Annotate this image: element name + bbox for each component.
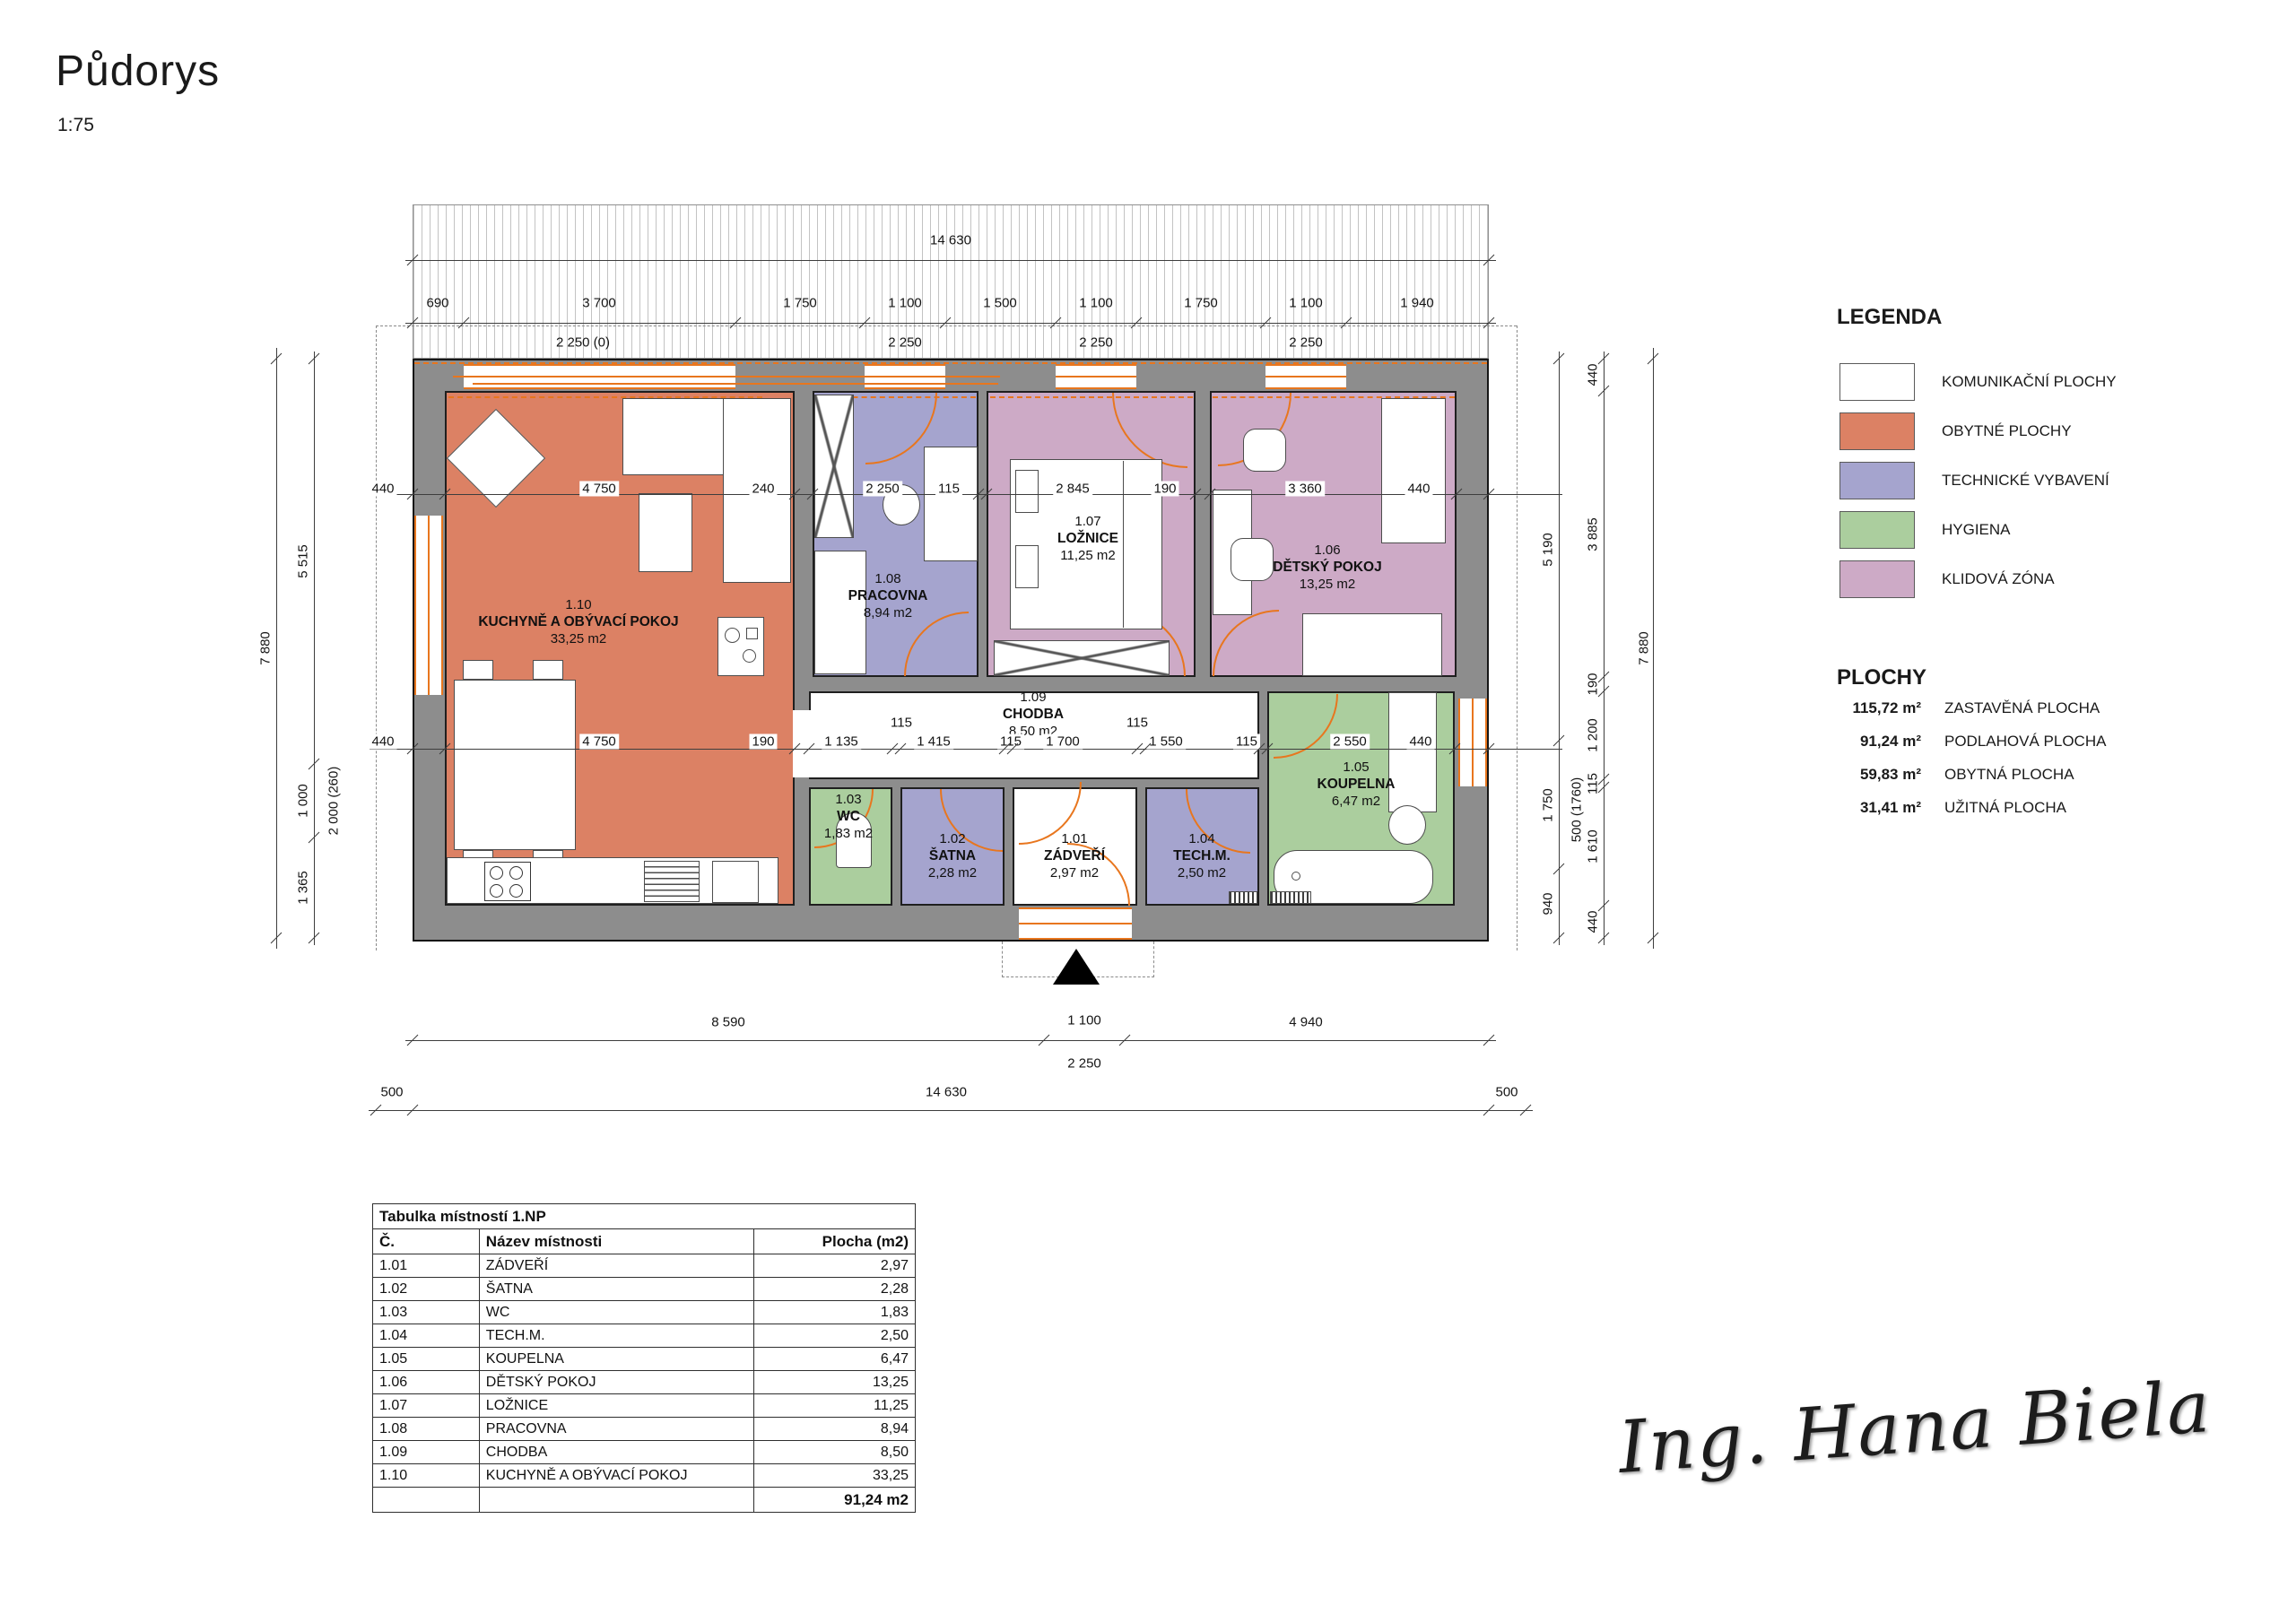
table-total-row: 91,24 m2 xyxy=(373,1488,916,1513)
dim-label: 2 250 xyxy=(1289,335,1323,351)
room-number: 1.02 xyxy=(928,830,977,847)
dining-table xyxy=(454,680,576,850)
legend-label: KOMUNIKAČNÍ PLOCHY xyxy=(1942,363,2117,401)
window-bathroom-east xyxy=(1458,699,1487,786)
room-label: 1.07LOŽNICE11,25 m2 xyxy=(1057,513,1118,564)
drawing-sheet: Půdorys 1:75 xyxy=(0,0,2296,1623)
room-label: 1.08PRACOVNA8,94 m2 xyxy=(848,570,928,621)
room-number: 1.08 xyxy=(848,570,928,587)
cell-number: 1.04 xyxy=(373,1324,480,1348)
area-value: 91,24 m² xyxy=(1831,733,1921,751)
table-row: 1.02ŠATNA2,28 xyxy=(373,1278,916,1301)
dim-label: 8 590 xyxy=(711,1015,745,1030)
dim-label: 2 250 xyxy=(1067,1056,1101,1072)
dim-label: 1 750 xyxy=(1184,296,1218,311)
burner xyxy=(490,884,503,898)
tech-grate xyxy=(1229,891,1257,904)
room-name: ZÁDVEŘÍ xyxy=(1044,847,1105,864)
legend-label: KLIDOVÁ ZÓNA xyxy=(1942,560,2055,598)
table-row: 1.10KUCHYNĚ A OBÝVACÍ POKOJ33,25 xyxy=(373,1464,916,1488)
cell-name: DĚTSKÝ POKOJ xyxy=(479,1371,753,1394)
washing-machine xyxy=(1270,891,1311,904)
dim-label: 2 845 xyxy=(1053,482,1092,497)
page-title: Půdorys xyxy=(56,47,220,96)
dishwasher xyxy=(644,861,700,902)
room-area: 33,25 m2 xyxy=(478,630,678,647)
room-area: 2,28 m2 xyxy=(928,864,977,881)
dim-label: 440 xyxy=(1406,734,1434,750)
table-row: 1.05KOUPELNA6,47 xyxy=(373,1348,916,1371)
dim-label: 2 250 xyxy=(888,335,922,351)
dim-label: 5 190 xyxy=(1541,533,1556,567)
dim-label: 14 630 xyxy=(930,233,971,248)
room-name: TECH.M. xyxy=(1173,847,1231,864)
room-number: 1.06 xyxy=(1273,542,1381,559)
drawing-scale: 1:75 xyxy=(57,115,94,136)
burner xyxy=(509,884,523,898)
room-name: KOUPELNA xyxy=(1318,776,1396,793)
cell-number: 1.03 xyxy=(373,1301,480,1324)
col-header-name: Název místnosti xyxy=(479,1229,753,1254)
cell-area: 6,47 xyxy=(754,1348,916,1371)
dim-label: 1 200 xyxy=(1586,718,1601,752)
entry-door-opening xyxy=(1019,907,1132,940)
dim-label: 440 xyxy=(369,734,396,750)
cell-name: CHODBA xyxy=(479,1441,753,1464)
sliding-door-track-2 xyxy=(473,383,998,385)
dim-label: 1 550 xyxy=(1146,734,1186,750)
cell-area: 11,25 xyxy=(754,1394,916,1418)
chair xyxy=(533,660,563,680)
burner xyxy=(509,866,523,880)
bed-fold-line xyxy=(1123,461,1124,628)
cell-name: ZÁDVEŘÍ xyxy=(479,1254,753,1278)
dim-label: 1 940 xyxy=(1400,296,1434,311)
cell-number: 1.02 xyxy=(373,1278,480,1301)
table-total: 91,24 m2 xyxy=(754,1488,916,1513)
room-number: 1.05 xyxy=(1318,759,1396,776)
dim-label: 500 xyxy=(1495,1085,1518,1100)
area-value: 59,83 m² xyxy=(1831,766,1921,784)
room-number: 1.10 xyxy=(478,596,678,613)
table-header-row: Č. Název místnosti Plocha (m2) xyxy=(373,1229,916,1254)
cell-area: 2,97 xyxy=(754,1254,916,1278)
area-value: 31,41 m² xyxy=(1831,799,1921,817)
dim-label: 440 xyxy=(369,482,396,497)
legend-title: LEGENDA xyxy=(1837,305,1942,330)
dim-label: 1 750 xyxy=(1541,788,1556,822)
dim-label: 190 xyxy=(749,734,777,750)
room-area: 8,94 m2 xyxy=(848,604,928,621)
cell-name: ŠATNA xyxy=(479,1278,753,1301)
room-area: 6,47 m2 xyxy=(1318,793,1396,810)
room-area: 13,25 m2 xyxy=(1273,576,1381,593)
dim-label: 240 xyxy=(749,482,777,497)
legend-swatch xyxy=(1839,412,1915,450)
room-table: Tabulka místností 1.NP Č. Název místnost… xyxy=(372,1203,916,1513)
legend-label: HYGIENA xyxy=(1942,511,2011,549)
table-row: 1.09CHODBA8,50 xyxy=(373,1441,916,1464)
dim-label: 115 xyxy=(997,734,1024,750)
room-area: 2,50 m2 xyxy=(1173,864,1231,881)
cell-name: WC xyxy=(479,1301,753,1324)
room-label: 1.09CHODBA8,50 m2 xyxy=(1003,689,1064,740)
dim-line xyxy=(370,494,1562,495)
coffee-table xyxy=(639,493,692,572)
dim-label: 690 xyxy=(426,296,448,311)
dim-label: 1 700 xyxy=(1043,734,1083,750)
dim-line xyxy=(1604,352,1605,945)
wardrobe-bedroom xyxy=(994,640,1170,676)
legend-label: TECHNICKÉ VYBAVENÍ xyxy=(1942,462,2109,499)
dim-label: 4 940 xyxy=(1289,1015,1323,1030)
chair-kids-1 xyxy=(1243,429,1286,472)
cell-number: 1.06 xyxy=(373,1371,480,1394)
legend-swatch xyxy=(1839,560,1915,598)
fridge xyxy=(712,861,759,903)
dim-label: 500 xyxy=(380,1085,403,1100)
table-title-row: Tabulka místností 1.NP xyxy=(373,1204,916,1229)
cell-empty xyxy=(373,1488,480,1513)
dim-line xyxy=(405,260,1496,261)
dim-label: 1 610 xyxy=(1586,829,1601,864)
dim-label: 3 360 xyxy=(1285,482,1325,497)
overhang-boundary-left xyxy=(376,325,377,950)
island-hob xyxy=(746,628,758,639)
legend-swatch xyxy=(1839,363,1915,401)
bathtub-drain xyxy=(1291,872,1300,881)
room-label: 1.01ZÁDVEŘÍ2,97 m2 xyxy=(1044,830,1105,881)
dim-line xyxy=(314,352,315,945)
room-number: 1.04 xyxy=(1173,830,1231,847)
room-label: 1.04TECH.M.2,50 m2 xyxy=(1173,830,1231,881)
legend-label: OBYTNÉ PLOCHY xyxy=(1942,412,2072,450)
pillow xyxy=(1015,470,1039,513)
dim-label: 2 250 xyxy=(1079,335,1113,351)
table-row: 1.07LOŽNICE11,25 xyxy=(373,1394,916,1418)
dim-label: 1 365 xyxy=(296,871,311,905)
desk-study xyxy=(924,447,978,561)
room-label: 1.03WC1,83 m2 xyxy=(824,791,873,842)
table-row: 1.01ZÁDVEŘÍ2,97 xyxy=(373,1254,916,1278)
window-living-west xyxy=(414,516,443,695)
entrance-arrow-icon xyxy=(1053,949,1100,985)
dim-label: 440 xyxy=(1586,363,1601,386)
room-number: 1.07 xyxy=(1057,513,1118,530)
dim-label: 1 750 xyxy=(783,296,817,311)
dim-label: 7 880 xyxy=(258,631,274,665)
table-row: 1.06DĚTSKÝ POKOJ13,25 xyxy=(373,1371,916,1394)
cell-name: TECH.M. xyxy=(479,1324,753,1348)
room-name: LOŽNICE xyxy=(1057,530,1118,547)
room-name: WC xyxy=(824,808,873,825)
dim-label: 1 100 xyxy=(888,296,922,311)
cell-name: PRACOVNA xyxy=(479,1418,753,1441)
room-label: 1.06DĚTSKÝ POKOJ13,25 m2 xyxy=(1273,542,1381,593)
cell-name: KOUPELNA xyxy=(479,1348,753,1371)
dim-line xyxy=(405,1040,1496,1041)
dim-label: 2 550 xyxy=(1330,734,1370,750)
cell-number: 1.10 xyxy=(373,1464,480,1488)
island-sink-2 xyxy=(743,649,756,663)
dim-line xyxy=(405,323,1496,324)
vanity-bathroom xyxy=(1388,692,1437,812)
kids-bed-1 xyxy=(1381,398,1446,543)
dim-label: 1 500 xyxy=(983,296,1017,311)
cell-number: 1.08 xyxy=(373,1418,480,1441)
room-label: 1.05KOUPELNA6,47 m2 xyxy=(1318,759,1396,810)
overhang-boundary-line xyxy=(376,325,1517,326)
dim-label: 1 415 xyxy=(914,734,953,750)
dim-label: 440 xyxy=(1405,482,1432,497)
cell-number: 1.09 xyxy=(373,1441,480,1464)
cell-area: 1,83 xyxy=(754,1301,916,1324)
dim-label: 190 xyxy=(1586,673,1601,695)
dim-label: 1 100 xyxy=(1079,296,1113,311)
dim-label: 115 xyxy=(1124,716,1151,731)
toilet-bathroom xyxy=(1388,805,1426,845)
dim-label: 2 250 (0) xyxy=(556,335,610,351)
room-name: ŠATNA xyxy=(928,847,977,864)
room-area: 2,97 m2 xyxy=(1044,864,1105,881)
burner xyxy=(490,866,503,880)
pillow xyxy=(1015,545,1039,588)
cell-number: 1.07 xyxy=(373,1394,480,1418)
area-value: 115,72 m² xyxy=(1831,699,1921,717)
area-label: OBYTNÁ PLOCHA xyxy=(1944,766,2074,784)
areas-title: PLOCHY xyxy=(1837,665,1926,690)
room-name: KUCHYNĚ A OBÝVACÍ POKOJ xyxy=(478,613,678,630)
cell-area: 33,25 xyxy=(754,1464,916,1488)
terrace-edge-line xyxy=(414,362,1487,364)
room-area: 11,25 m2 xyxy=(1057,547,1118,564)
dim-label: 1 100 xyxy=(1289,296,1323,311)
room-label: 1.02ŠATNA2,28 m2 xyxy=(928,830,977,881)
cell-area: 2,28 xyxy=(754,1278,916,1301)
wardrobe-study xyxy=(814,395,854,538)
signature: Ing. Hana Biela xyxy=(1604,1364,2227,1490)
dim-line xyxy=(369,1110,1533,1111)
dim-label: 940 xyxy=(1541,892,1556,915)
area-label: UŽITNÁ PLOCHA xyxy=(1944,799,2066,817)
room-area: 1,83 m2 xyxy=(824,825,873,842)
cell-number: 1.01 xyxy=(373,1254,480,1278)
island-sink xyxy=(725,628,740,643)
dim-label: 115 xyxy=(935,482,962,497)
dim-label: 115 xyxy=(1233,734,1260,750)
dim-label: 500 (1760) xyxy=(1570,777,1585,843)
dim-line xyxy=(1559,352,1560,945)
table-row: 1.04TECH.M.2,50 xyxy=(373,1324,916,1348)
dim-line xyxy=(1653,348,1654,949)
window-bedroom xyxy=(1056,364,1136,389)
window-kids-room xyxy=(1265,364,1346,389)
col-header-area: Plocha (m2) xyxy=(754,1229,916,1254)
dim-label: 1 135 xyxy=(822,734,861,750)
room-number: 1.01 xyxy=(1044,830,1105,847)
room-label: 1.10KUCHYNĚ A OBÝVACÍ POKOJ33,25 m2 xyxy=(478,596,678,647)
cell-area: 13,25 xyxy=(754,1371,916,1394)
dim-label: 14 630 xyxy=(926,1085,967,1100)
cell-number: 1.05 xyxy=(373,1348,480,1371)
dim-label: 1 000 xyxy=(296,784,311,818)
cell-area: 8,50 xyxy=(754,1441,916,1464)
dim-label: 190 xyxy=(1151,482,1178,497)
area-label: ZASTAVĚNÁ PLOCHA xyxy=(1944,699,2100,717)
legend-swatch xyxy=(1839,462,1915,499)
dim-label: 3 885 xyxy=(1586,517,1601,551)
overhang-boundary-right xyxy=(1517,325,1518,950)
dim-line xyxy=(276,348,277,949)
room-name: PRACOVNA xyxy=(848,587,928,604)
table-title: Tabulka místností 1.NP xyxy=(373,1204,916,1229)
cell-empty xyxy=(479,1488,753,1513)
col-header-number: Č. xyxy=(373,1229,480,1254)
cell-area: 2,50 xyxy=(754,1324,916,1348)
dim-label: 440 xyxy=(1586,910,1601,933)
table-row: 1.03WC1,83 xyxy=(373,1301,916,1324)
cell-name: KUCHYNĚ A OBÝVACÍ POKOJ xyxy=(479,1464,753,1488)
dim-label: 7 880 xyxy=(1637,631,1652,665)
dim-label: 115 xyxy=(888,716,915,731)
dim-label: 3 700 xyxy=(582,296,616,311)
dim-label: 2 000 (260) xyxy=(326,767,342,836)
kids-bed-2 xyxy=(1302,613,1442,676)
dim-label: 4 750 xyxy=(579,482,619,497)
cell-name: LOŽNICE xyxy=(479,1394,753,1418)
sliding-door-track-1 xyxy=(453,376,1000,378)
room-number: 1.03 xyxy=(824,791,873,808)
chair-kids-2 xyxy=(1231,538,1274,581)
chair xyxy=(463,660,493,680)
cell-area: 8,94 xyxy=(754,1418,916,1441)
dim-label: 4 750 xyxy=(579,734,619,750)
dim-line xyxy=(370,749,1562,750)
table-row: 1.08PRACOVNA8,94 xyxy=(373,1418,916,1441)
room-name: DĚTSKÝ POKOJ xyxy=(1273,559,1381,576)
dim-label: 1 100 xyxy=(1067,1013,1101,1028)
legend-swatch xyxy=(1839,511,1915,549)
kitchen-island xyxy=(717,617,764,676)
opening-living-hallway xyxy=(793,710,811,777)
room-name: CHODBA xyxy=(1003,706,1064,723)
dim-label: 2 250 xyxy=(863,482,902,497)
dim-label: 5 515 xyxy=(296,544,311,578)
area-label: PODLAHOVÁ PLOCHA xyxy=(1944,733,2106,751)
room-number: 1.09 xyxy=(1003,689,1064,706)
